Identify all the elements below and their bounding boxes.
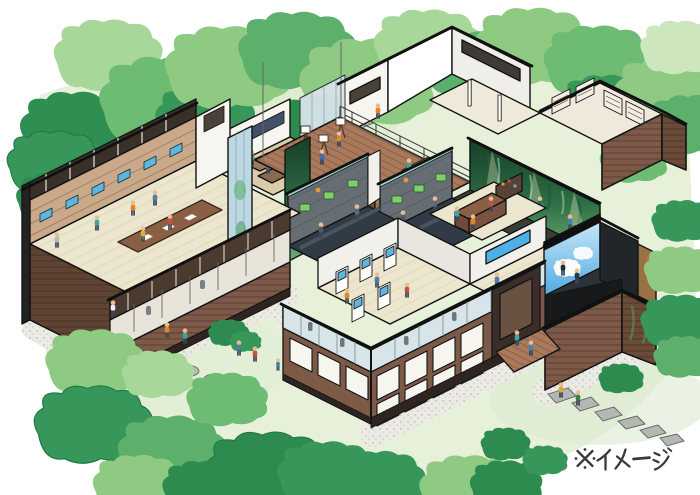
image-note-caption	[575, 448, 672, 469]
cutaway-illustration	[0, 0, 700, 495]
illustration-canvas: ※イメージ	[0, 0, 700, 495]
